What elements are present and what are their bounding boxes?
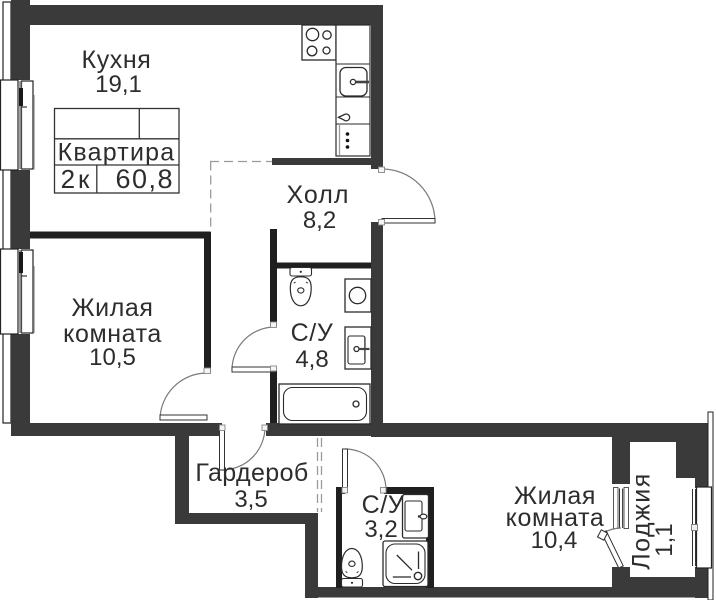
svg-text:Квартира: Квартира [58, 139, 176, 167]
svg-text:2к: 2к [61, 164, 93, 194]
svg-text:1,1: 1,1 [651, 523, 678, 556]
svg-text:Холл: Холл [287, 181, 350, 209]
svg-text:4,8: 4,8 [295, 346, 328, 373]
svg-text:С/У: С/У [291, 319, 334, 347]
svg-text:Гардероб: Гардероб [195, 459, 308, 487]
svg-text:Кухня: Кухня [82, 46, 152, 74]
svg-text:19,1: 19,1 [95, 71, 142, 98]
svg-text:10,5: 10,5 [89, 344, 136, 371]
svg-text:10,4: 10,4 [531, 527, 578, 554]
svg-text:Жилая: Жилая [71, 294, 153, 322]
svg-text:8,2: 8,2 [303, 207, 336, 234]
svg-text:60,8: 60,8 [115, 164, 174, 194]
svg-text:3,2: 3,2 [364, 516, 397, 543]
svg-text:С/У: С/У [362, 491, 405, 519]
svg-text:3,5: 3,5 [234, 486, 267, 513]
